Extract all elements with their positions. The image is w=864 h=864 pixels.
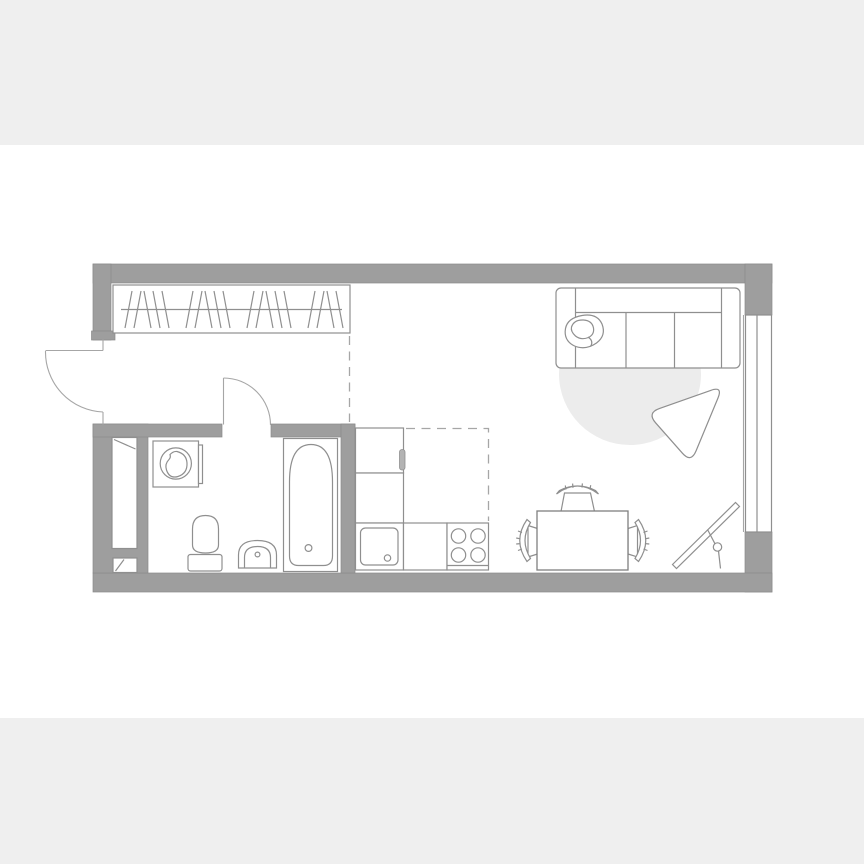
wash-basin — [239, 541, 277, 569]
chair-top-seat — [561, 493, 595, 512]
bathtub — [284, 439, 338, 572]
window-frame — [746, 315, 772, 532]
dining-set — [516, 483, 649, 570]
chair-left — [516, 520, 537, 562]
hallway — [45, 285, 350, 425]
chair-left-seat — [528, 526, 538, 558]
wall-kitchen-divider — [341, 424, 355, 573]
chair-right — [628, 520, 649, 562]
mirror-pivot — [713, 543, 721, 551]
shaft-niche — [112, 438, 137, 549]
counter — [404, 523, 448, 570]
dining-table — [537, 511, 628, 570]
tall-cabinet — [356, 428, 404, 473]
wall-top — [93, 264, 772, 283]
washing-machine-panel — [199, 445, 203, 484]
toilet-bowl — [193, 516, 219, 554]
wall-bottom — [93, 573, 772, 592]
mirror-leg — [719, 551, 721, 569]
kitchen — [356, 428, 489, 570]
toilet — [188, 516, 222, 572]
mirror-panel — [673, 503, 740, 569]
toilet-tank — [188, 555, 222, 572]
wall-left-upper — [93, 264, 111, 340]
wall-bathroom-top-left — [93, 424, 222, 437]
chair-top — [557, 483, 599, 511]
pillow — [565, 315, 603, 348]
bathroom-door — [224, 378, 271, 425]
entrance-door-swing-arc — [45, 351, 103, 412]
floor-plan — [0, 0, 864, 864]
floor-mirror — [673, 503, 740, 569]
bathroom-door-swing-arc — [224, 378, 271, 425]
wall-right-top — [745, 264, 772, 315]
page — [0, 0, 864, 864]
living-dining — [516, 288, 740, 570]
washing-machine — [153, 441, 203, 487]
entrance-door — [45, 340, 103, 425]
sofa — [556, 288, 740, 368]
chair-right-seat — [628, 526, 638, 558]
kitchen-zone-dashed-line — [406, 429, 489, 522]
base-cabinet — [356, 473, 404, 523]
bathroom — [153, 439, 338, 572]
window — [744, 315, 772, 532]
cooktop — [447, 523, 489, 570]
kitchen-sink — [361, 528, 399, 565]
cabinet-handle — [400, 450, 406, 471]
wall-entrance-cap — [92, 331, 116, 340]
